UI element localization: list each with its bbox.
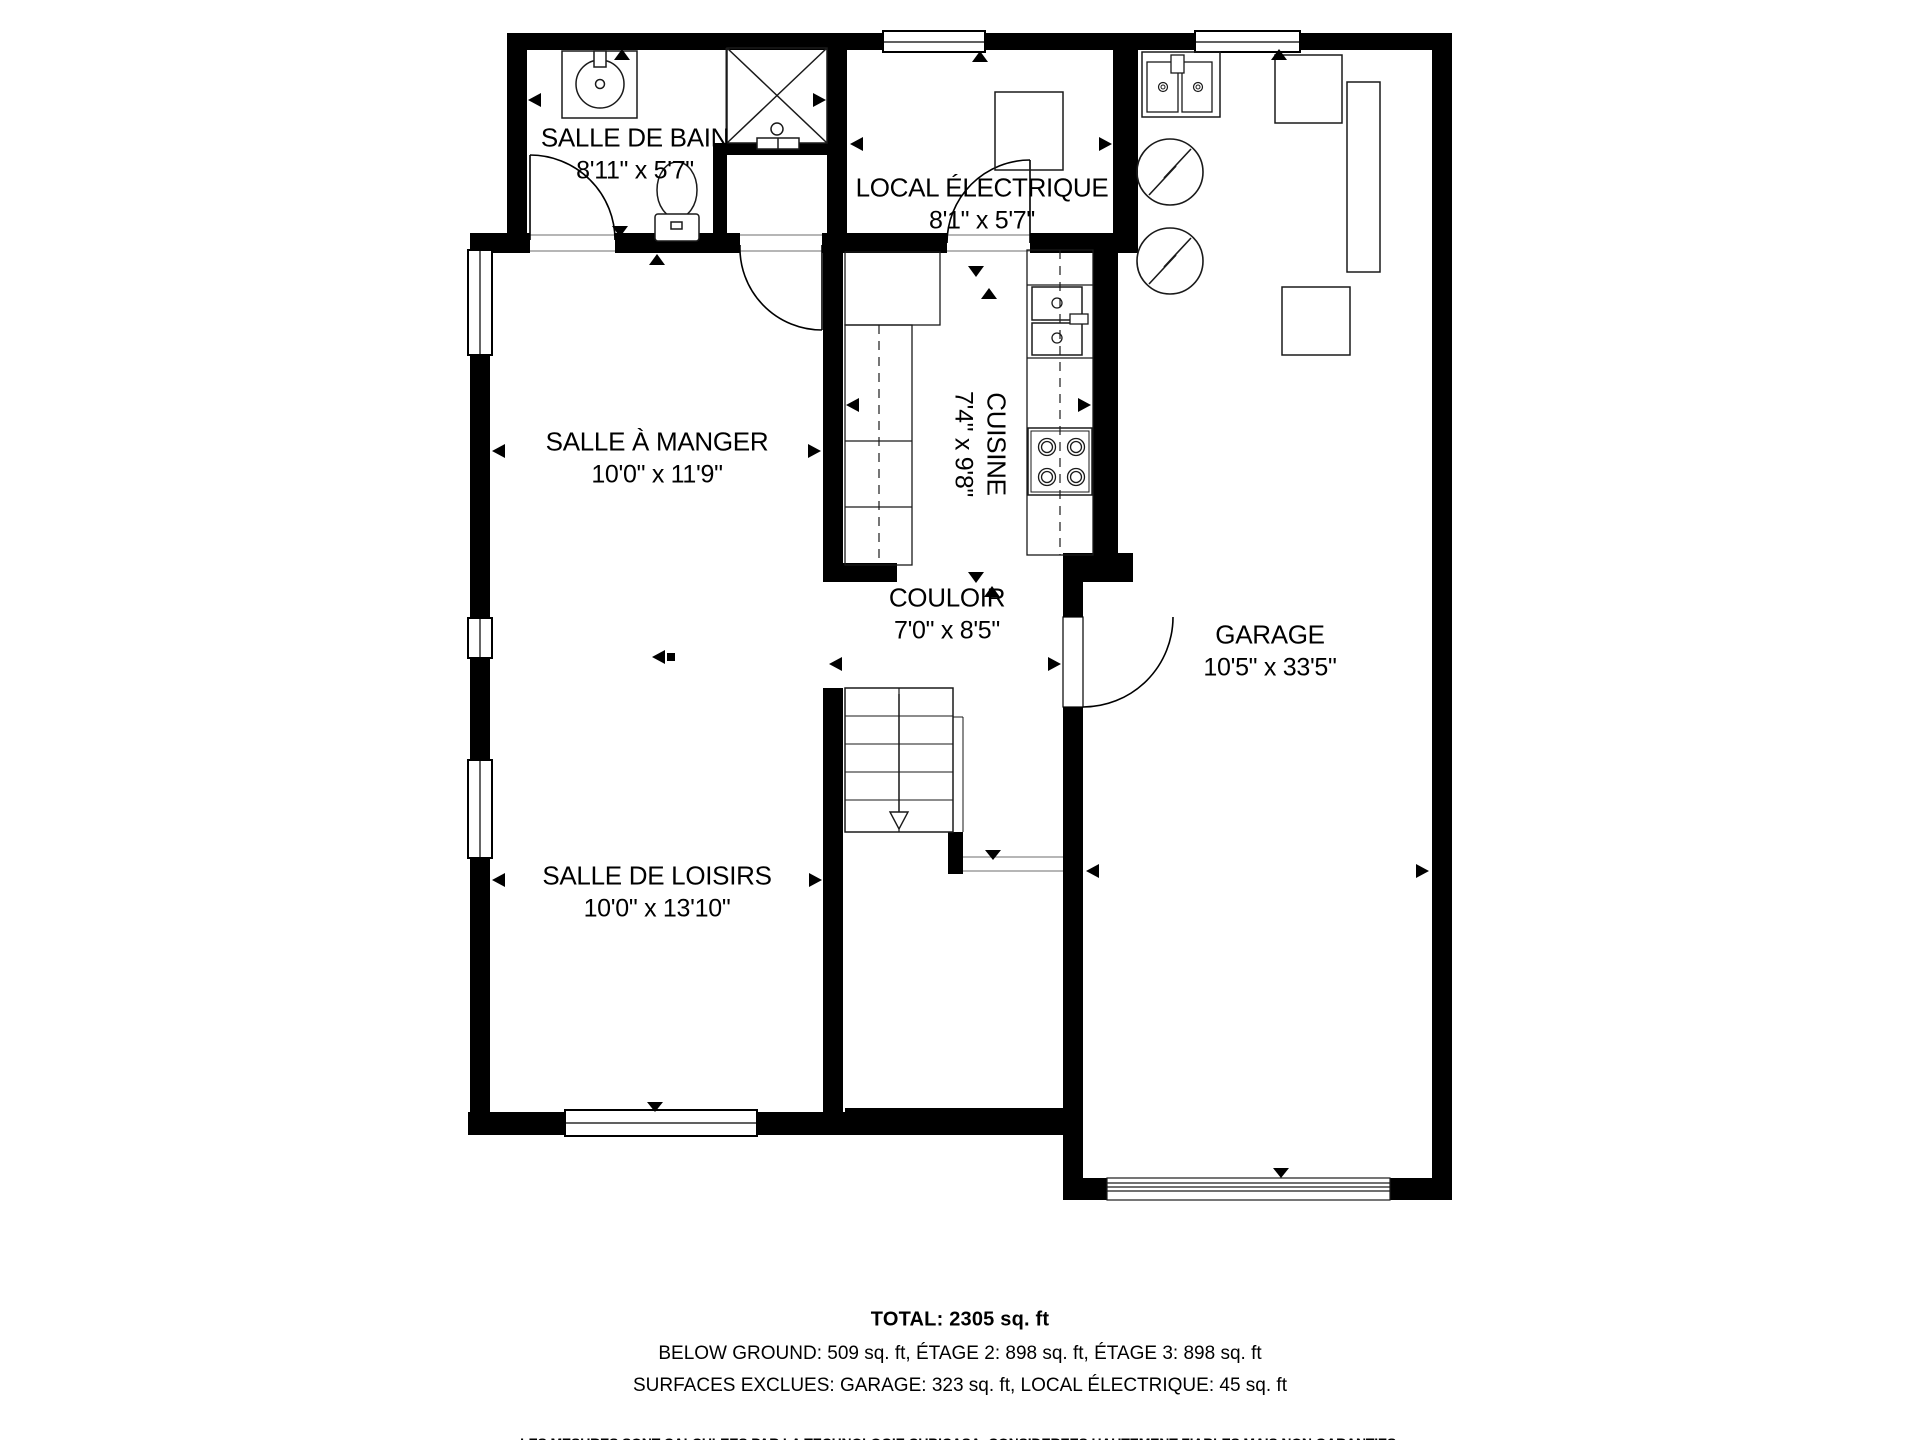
window-icon bbox=[1195, 31, 1300, 52]
window-icon bbox=[468, 760, 492, 858]
arrow-left bbox=[492, 444, 505, 458]
water-heater-icon bbox=[1137, 228, 1203, 294]
arrow-right bbox=[809, 873, 822, 887]
total-area-text: TOTAL: 2305 sq. ft bbox=[871, 1309, 1049, 1332]
room-dimensions: 7'4" x 9'8" bbox=[947, 391, 980, 497]
arrow-up bbox=[981, 288, 997, 299]
door-swing-icon bbox=[740, 245, 822, 330]
arrow-left bbox=[1086, 864, 1099, 878]
arrow-right bbox=[1078, 398, 1091, 412]
window-icon bbox=[565, 1110, 757, 1136]
window-icon bbox=[883, 31, 985, 52]
room-label-cuisine: CUISINE 7'4" x 9'8" bbox=[947, 391, 1014, 497]
arrow-right bbox=[1048, 657, 1061, 671]
window-icon bbox=[468, 250, 492, 355]
kitchen-counter bbox=[845, 325, 912, 565]
arrow-left bbox=[652, 650, 665, 664]
room-dimensions: 8'1" x 5'7" bbox=[856, 205, 1109, 238]
garage-door-icon bbox=[1107, 1178, 1390, 1200]
arrow-right bbox=[808, 444, 821, 458]
arrow-right bbox=[1099, 137, 1112, 151]
room-dimensions: 10'0" x 11'9" bbox=[546, 459, 769, 492]
room-label-salle-de-loisirs: SALLE DE LOISIRS 10'0" x 13'10" bbox=[542, 859, 771, 926]
disclaimer-text: LES MESURES SONT CALCULEES PAR LA TECHNO… bbox=[520, 1435, 1400, 1440]
garage-shelf bbox=[1347, 82, 1380, 272]
room-dimensions: 10'0" x 13'10" bbox=[542, 893, 771, 926]
staircase-icon bbox=[845, 688, 963, 832]
arrow-down bbox=[985, 850, 1001, 860]
door-thresholds bbox=[530, 235, 1063, 871]
laundry-sink-icon bbox=[1142, 52, 1220, 117]
room-dimensions: 10'5" x 33'5" bbox=[1203, 652, 1336, 685]
room-dimensions: 8'11" x 5'7" bbox=[541, 155, 729, 188]
room-label-garage: GARAGE 10'5" x 33'5" bbox=[1203, 618, 1336, 685]
electrical-panel-icon bbox=[995, 92, 1063, 170]
room-label-salle-de-bain: SALLE DE BAIN 8'11" x 5'7" bbox=[541, 121, 729, 188]
arrow-up bbox=[649, 254, 665, 265]
room-name: LOCAL ÉLECTRIQUE bbox=[856, 171, 1109, 205]
levels-area-text: BELOW GROUND: 509 sq. ft, ÉTAGE 2: 898 s… bbox=[658, 1343, 1261, 1365]
arrow-down bbox=[1273, 1168, 1289, 1178]
floor-plan-page: SALLE DE BAIN 8'11" x 5'7" LOCAL ÉLECTRI… bbox=[0, 0, 1920, 1440]
excluded-area-text: SURFACES EXCLUES: GARAGE: 323 sq. ft, LO… bbox=[633, 1375, 1287, 1397]
garage-cabinet bbox=[1275, 55, 1342, 123]
arrow-right bbox=[813, 93, 826, 107]
shower-icon bbox=[726, 48, 827, 149]
room-name: SALLE DE BAIN bbox=[541, 121, 729, 155]
room-label-salle-a-manger: SALLE À MANGER 10'0" x 11'9" bbox=[546, 425, 769, 492]
arrow-left bbox=[528, 93, 541, 107]
arrow-left bbox=[829, 657, 842, 671]
arrow-right bbox=[1416, 864, 1429, 878]
room-name: GARAGE bbox=[1203, 618, 1336, 652]
room-label-local-electrique: LOCAL ÉLECTRIQUE 8'1" x 5'7" bbox=[856, 171, 1109, 238]
room-label-couloir: COULOIR 7'0" x 8'5" bbox=[889, 581, 1005, 648]
room-name: CUISINE bbox=[980, 391, 1014, 497]
room-dimensions: 7'0" x 8'5" bbox=[889, 615, 1005, 648]
arrow-down bbox=[968, 266, 984, 277]
garage-cabinet bbox=[1282, 287, 1350, 355]
room-name: COULOIR bbox=[889, 581, 1005, 615]
refrigerator-icon bbox=[845, 252, 940, 325]
door-swing-icon bbox=[1063, 617, 1173, 707]
arrow-left bbox=[492, 873, 505, 887]
window-icon bbox=[468, 618, 492, 658]
water-heater-icon bbox=[1137, 139, 1203, 205]
room-name: SALLE DE LOISIRS bbox=[542, 859, 771, 893]
bathroom-sink-icon bbox=[562, 51, 637, 118]
room-name: SALLE À MANGER bbox=[546, 425, 769, 459]
arrow-left bbox=[846, 398, 859, 412]
arrow-left bbox=[850, 137, 863, 151]
